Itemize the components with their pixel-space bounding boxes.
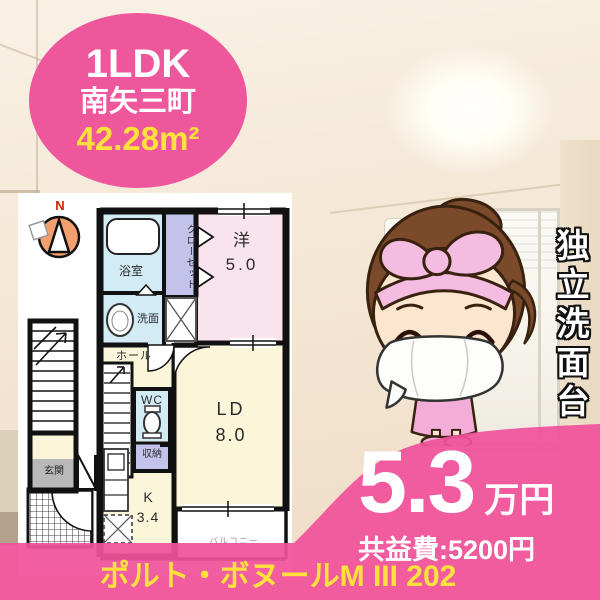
room-label-hall: ホール (106, 350, 162, 363)
ceiling-light (385, 45, 555, 175)
room-label-storage: 収納 (135, 449, 169, 461)
room-label-living: LD (180, 399, 282, 420)
rent-amount: 5.3 (358, 438, 474, 526)
rent-unit: 万円 (484, 472, 554, 523)
room-label-closet: クローゼット (167, 220, 196, 294)
room-size-kitchen: 3.4 (124, 509, 172, 525)
room-label-washstand: 洗面 (128, 313, 168, 326)
bow-knot (424, 248, 450, 274)
room-label-western: 洋 (198, 231, 286, 251)
room-label-balcony: バルコニー (190, 536, 278, 546)
badge-area: 42.28m² (29, 121, 247, 157)
listing-flyer: N 浴室 クローゼット 洋 5.0 洗面 ホール WC 収納 LD 8.0 K … (0, 0, 600, 600)
room-label-wc: WC (136, 394, 168, 408)
feature-tag-vertical: 独立洗面台 (546, 228, 594, 423)
floorplan: N 浴室 クローゼット 洋 5.0 洗面 ホール WC 収納 LD 8.0 K … (18, 193, 292, 575)
room-label-kitchen: K (124, 489, 172, 505)
compass-north-label: N (46, 199, 74, 214)
room-size-western: 5.0 (198, 255, 286, 275)
property-name: ポルト・ボヌールM III 202 (0, 551, 578, 595)
property-badge: 1LDK 南矢三町 42.28m² (29, 13, 247, 188)
badge-location: 南矢三町 (29, 87, 247, 119)
room-label-bath: 浴室 (102, 265, 160, 279)
mascot-character (354, 194, 538, 446)
room-label-entrance: 玄関 (32, 466, 76, 478)
room-size-living: 8.0 (180, 425, 282, 446)
badge-layout: 1LDK (29, 43, 247, 85)
price-block: 5.3 万円 共益費:5200円 (358, 438, 596, 567)
